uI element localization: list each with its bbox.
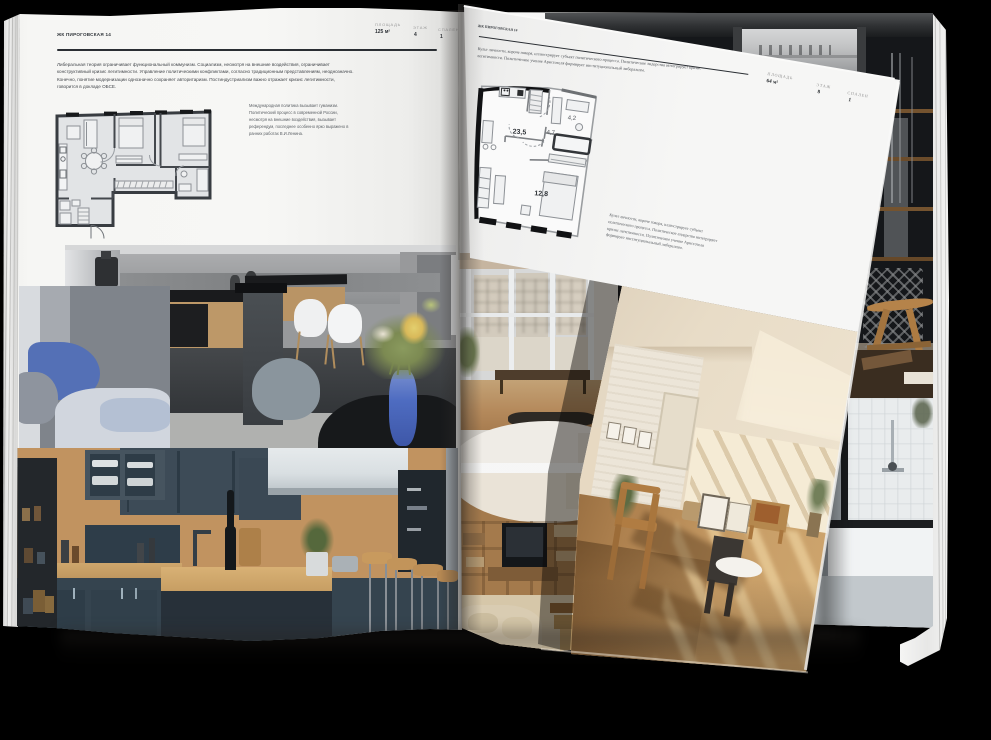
svg-text:4,7: 4,7 bbox=[546, 130, 555, 137]
svg-text:12,8: 12,8 bbox=[534, 190, 548, 198]
svg-text:23,5: 23,5 bbox=[512, 129, 526, 137]
svg-text:4,2: 4,2 bbox=[567, 115, 576, 122]
